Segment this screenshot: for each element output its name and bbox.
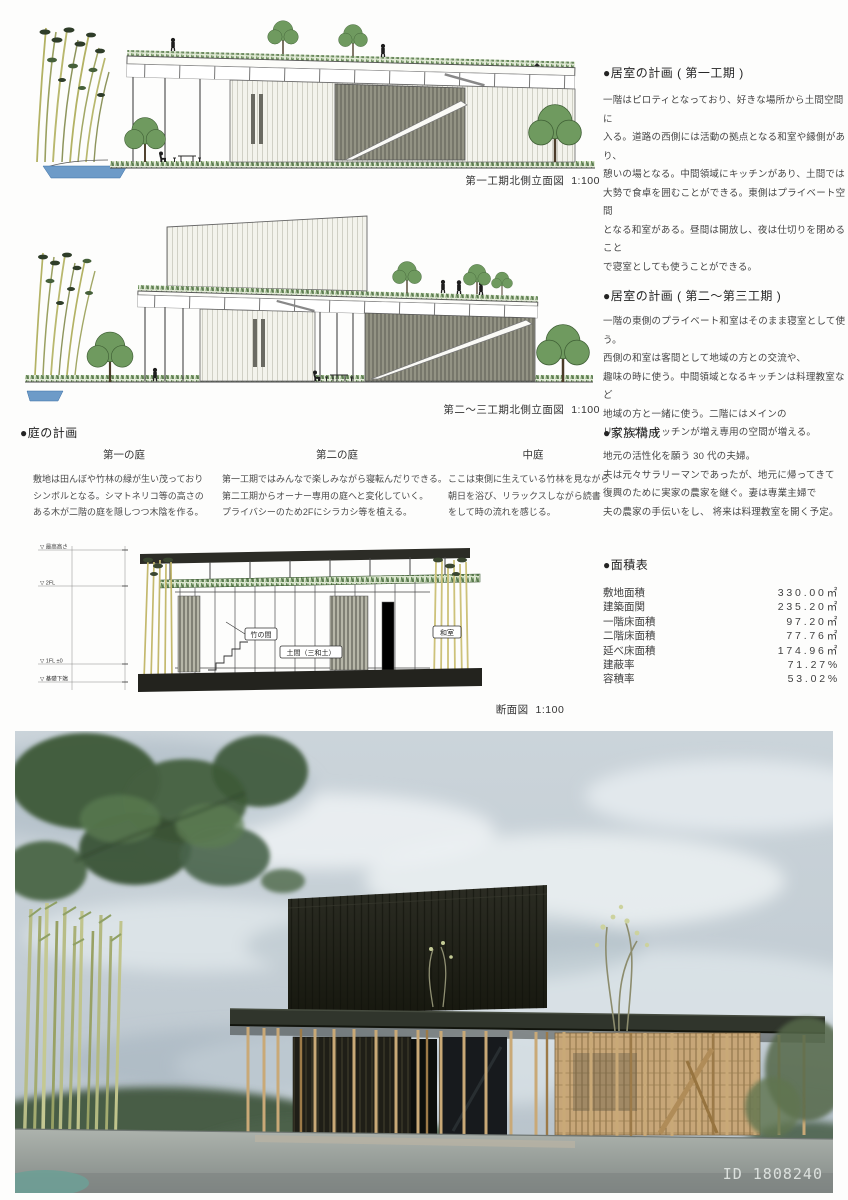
- area-label: 延べ床面積: [603, 644, 656, 658]
- plan1-body: 一階はピロティとなっており、好きな場所から土間空間に 入る。道路の西側には活動の…: [603, 92, 846, 277]
- dark-slat-wall: [293, 1037, 411, 1139]
- room-label-doma: 土間（三和土）: [287, 648, 336, 657]
- level-labels: ▽ 最高高さ ▽ 2FL ▽ 1FL ±0 ▽ 基礎下端: [40, 543, 68, 683]
- area-row: 敷地面積 330.00㎡: [603, 586, 840, 600]
- building-elevation-1: [127, 38, 576, 162]
- level-label: ▽ 2FL: [40, 581, 55, 587]
- section-caption: 断面図 1:100: [460, 702, 600, 717]
- family-body: 地元の活性化を願う 30 代の夫婦。 夫は元々サラリーマンであったが、地元に帰っ…: [603, 448, 846, 522]
- area-label: 二階床面積: [603, 629, 656, 643]
- bamboo-sketch: [37, 27, 109, 167]
- bamboo-sketch: [35, 253, 95, 375]
- door-slit: [251, 94, 255, 144]
- room-label-washitsu: 和室: [440, 628, 454, 637]
- area-row: 二階床面積 77.76㎡: [603, 629, 840, 643]
- room-label-bamboo: 竹の間: [251, 630, 272, 639]
- garden-1-body: 敷地は田んぼや竹林の緑が生い茂っており シンボルとなる。シマトネリコ等の高さの …: [33, 471, 215, 521]
- upper-dark-volume: [285, 881, 550, 1017]
- garden-column-1: 第一の庭 敷地は田んぼや竹林の緑が生い茂っており シンボルとなる。シマトネリコ等…: [33, 447, 215, 521]
- door-slit: [259, 94, 263, 144]
- level-label: ▽ 最高高さ: [40, 543, 68, 551]
- section-drawing: ▽ 最高高さ ▽ 2FL ▽ 1FL ±0 ▽ 基礎下端: [30, 540, 575, 700]
- area-label: 容積率: [603, 672, 635, 686]
- area-value: 53.02%: [788, 672, 840, 686]
- area-label: 建蔽率: [603, 658, 635, 672]
- second-floor-volume: [167, 216, 367, 291]
- area-value: 71.27%: [788, 658, 840, 672]
- area-heading: ●面積表: [603, 556, 648, 573]
- area-row: 建築面関 235.20㎡: [603, 600, 840, 614]
- family-heading: ●家族構成: [603, 424, 661, 441]
- garden-column-3: 中庭 ここは東側に生えている竹林を見ながら 朝日を浴び、リラックスしながら読書 …: [448, 447, 618, 521]
- second-floor-garden: [160, 574, 480, 588]
- area-label: 一階床面積: [603, 615, 656, 629]
- area-table: 敷地面積 330.00㎡ 建築面関 235.20㎡ 一階床面積 97.20㎡ 二…: [603, 586, 840, 687]
- area-label: 敷地面積: [603, 586, 645, 600]
- elevation-2-drawing: [15, 205, 600, 405]
- level-label: ▽ 1FL ±0: [40, 659, 63, 665]
- bamboo-leaves: [38, 253, 93, 305]
- garden-2-body: 第一工期ではみんなで楽しみながら寝転んだりできる。 第二工期からオーナー専用の庭…: [222, 471, 452, 521]
- building-elevation-2: [137, 216, 537, 381]
- area-row: 容積率 53.02%: [603, 672, 840, 686]
- concrete-plinth: [15, 1129, 833, 1193]
- area-value: 97.20㎡: [786, 615, 840, 629]
- garden-2-title: 第二の庭: [222, 447, 452, 462]
- door-slit: [253, 319, 257, 367]
- dimension-lines: [38, 546, 128, 690]
- stairs: [208, 642, 248, 670]
- level-label: ▽ 基礎下端: [40, 675, 68, 683]
- area-row: 延べ床面積 174.96㎡: [603, 644, 840, 658]
- area-value: 235.20㎡: [778, 600, 840, 614]
- pond-water: [27, 391, 63, 401]
- elevation-1-caption: 第一工期北側立面図 1:100: [360, 173, 600, 188]
- door-slit: [261, 319, 265, 367]
- presentation-board: 第一工期北側立面図 1:100 ●居室の計画 ( 第一工期 ) 一階はピロティと…: [0, 0, 848, 1200]
- dark-slat-wall: [365, 313, 535, 381]
- plan1-heading: ●居室の計画 ( 第一工期 ): [603, 64, 744, 81]
- interior-slat-wall: [178, 596, 200, 672]
- entry-gap: [411, 1039, 437, 1138]
- area-value: 77.76㎡: [786, 629, 840, 643]
- interior-slat-wall: [330, 596, 368, 670]
- garden-heading: ●庭の計画: [20, 424, 78, 441]
- interior-panel: [382, 602, 394, 670]
- elevation-1-drawing: [15, 10, 600, 180]
- garden-3-title: 中庭: [448, 447, 618, 462]
- area-row: 建蔽率 71.27%: [603, 658, 840, 672]
- id-watermark: ID 1808240: [723, 1165, 823, 1183]
- garden-1-title: 第一の庭: [33, 447, 215, 462]
- model-photo-render: ID 1808240: [15, 731, 833, 1193]
- area-row: 一階床面積 97.20㎡: [603, 615, 840, 629]
- area-label: 建築面関: [603, 600, 645, 614]
- area-value: 330.00㎡: [778, 586, 840, 600]
- bamboo-left: [143, 558, 173, 680]
- roof-deck: [140, 548, 470, 564]
- plan2-heading: ●居室の計画 ( 第二〜第三工期 ): [603, 287, 781, 304]
- dark-slat-wall: [335, 84, 465, 160]
- elevation-2-caption: 第二〜三工期北側立面図 1:100: [350, 402, 600, 417]
- garden-column-2: 第二の庭 第一工期ではみんなで楽しみながら寝転んだりできる。 第二工期からオーナ…: [222, 447, 452, 521]
- garden-3-body: ここは東側に生えている竹林を見ながら 朝日を浴び、リラックスしながら読書 をして…: [448, 471, 618, 521]
- area-value: 174.96㎡: [778, 644, 840, 658]
- slat-wall: [200, 309, 315, 381]
- screen-shadow: [573, 1053, 637, 1111]
